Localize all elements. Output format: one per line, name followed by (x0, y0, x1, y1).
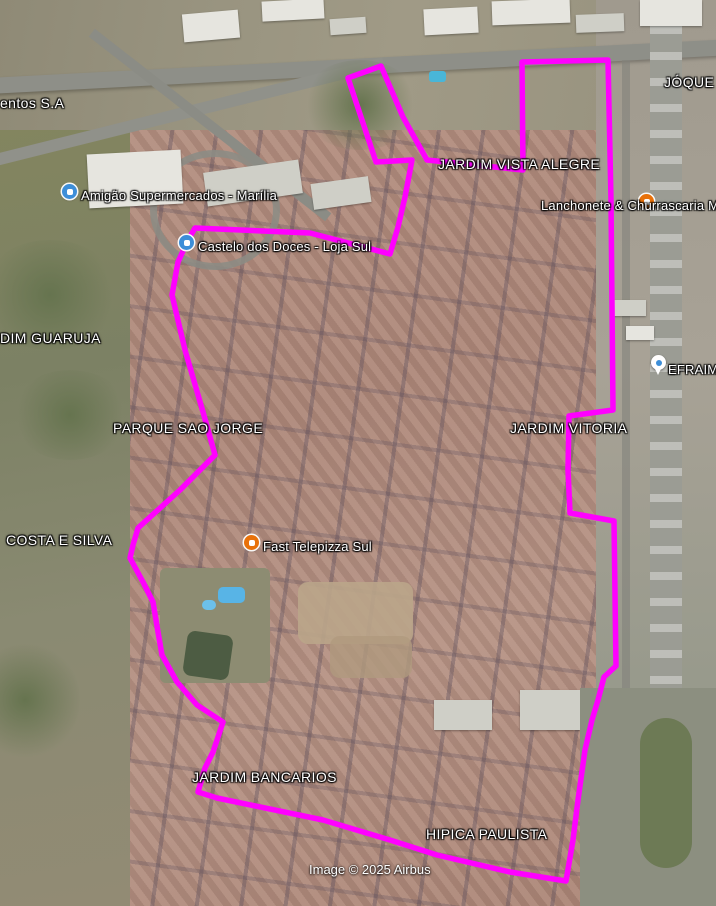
building-roof (612, 300, 646, 316)
building-roof (626, 326, 654, 340)
pool (429, 71, 446, 82)
vegetation-patch (10, 370, 130, 460)
map-label-joque: JÓQUE (664, 74, 714, 90)
map-label-hipica-paulista: HIPICA PAULISTA (426, 826, 547, 842)
imagery-attribution: Image © 2025 Airbus (309, 862, 431, 877)
building-roof (640, 0, 702, 26)
building-roof (182, 10, 240, 43)
dirt-lot (298, 582, 413, 644)
shopping-marker-icon[interactable] (62, 184, 77, 199)
poi-label-castelo-dos-doces[interactable]: Castelo dos Doces - Loja Sul (198, 239, 371, 254)
place-pin-icon[interactable] (651, 355, 666, 370)
poi-label-amigao-supermercados[interactable]: Amigão Supermercados - Marília (81, 188, 277, 203)
map-label-costa-e-silva: COSTA E SILVA (6, 532, 112, 548)
poi-label-fast-telepizza[interactable]: Fast Telepizza Sul (263, 539, 372, 554)
poi-label-lanchonete-churrascaria[interactable]: Lanchonete & Churrascaria Me (541, 198, 716, 213)
pool (218, 587, 245, 603)
satellite-map-viewport[interactable]: entos S.A JÓQUE JARDIM VISTA ALEGRE DIM … (0, 0, 716, 906)
building-roof (262, 0, 325, 22)
map-label-parque-sao-jorge: PARQUE SAO JORGE (113, 420, 263, 436)
map-label-jardim-vista-alegre: JARDIM VISTA ALEGRE (438, 156, 600, 172)
building-roof (329, 17, 366, 35)
dirt-lot (330, 636, 412, 678)
building-roof (576, 13, 625, 33)
shopping-marker-icon[interactable] (179, 235, 194, 250)
map-label-entos-sa: entos S.A (0, 95, 64, 111)
interchange-area (580, 688, 716, 906)
vegetation-patch (300, 60, 420, 150)
poi-label-efraim[interactable]: EFRAIM (668, 362, 716, 377)
building-roof (434, 700, 492, 730)
pool (202, 600, 216, 610)
map-label-jardim-vitoria: JARDIM VITORIA (510, 420, 627, 436)
building-roof (423, 7, 478, 36)
restaurant-marker-icon[interactable] (244, 535, 259, 550)
sports-field (182, 630, 234, 681)
map-label-jardim-guaruja: DIM GUARUJA (0, 330, 101, 346)
road-median (640, 718, 692, 868)
building-roof (492, 0, 571, 25)
map-label-jardim-bancarios: JARDIM BANCARIOS (192, 769, 337, 785)
